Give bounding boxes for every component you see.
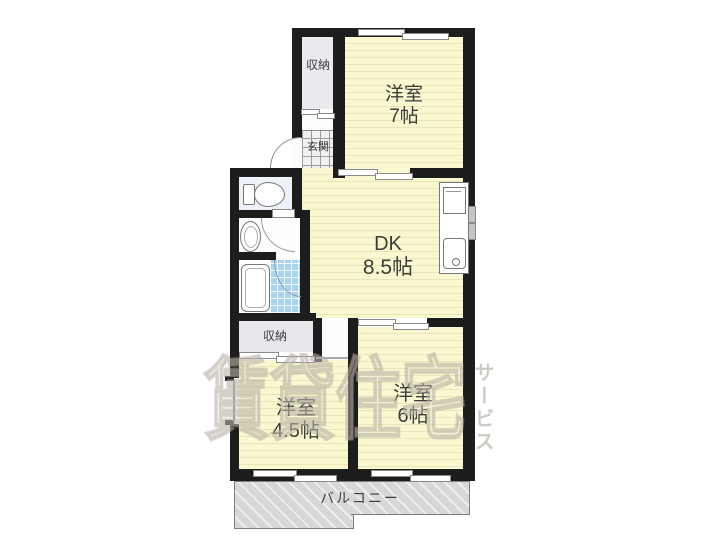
window-icon bbox=[358, 29, 405, 36]
wall bbox=[292, 168, 302, 210]
dk-w6-sliding-door-icon bbox=[358, 319, 396, 326]
dk-label: DK bbox=[352, 233, 424, 255]
dk-size-label: 8.5帖 bbox=[352, 256, 424, 279]
floorplan: 収納 洋室 7帖 玄関 DK 8.5帖 収納 洋室 4.5帖 洋室 6帖 バルコ… bbox=[0, 0, 720, 540]
wall bbox=[230, 252, 276, 260]
closet-bottom-label: 収納 bbox=[253, 330, 297, 343]
stove-icon bbox=[446, 191, 461, 192]
balcony-window-icon bbox=[410, 475, 451, 482]
window-icon bbox=[402, 33, 449, 40]
balcony-window-icon bbox=[371, 470, 413, 477]
western7-size-label: 7帖 bbox=[368, 107, 440, 128]
wall bbox=[300, 210, 310, 321]
dk-w7-sliding-door-icon bbox=[338, 169, 378, 176]
balcony-window-icon bbox=[253, 470, 297, 477]
closet-top-label: 収納 bbox=[296, 59, 340, 72]
wall bbox=[410, 168, 463, 178]
wall bbox=[333, 36, 345, 178]
closet-top-sliding-door-icon bbox=[317, 113, 335, 119]
western7-label: 洋室 bbox=[368, 85, 440, 106]
dk-w6-sliding-door-icon bbox=[393, 323, 429, 330]
watermark-vertical-text: サービス bbox=[468, 362, 497, 462]
wall bbox=[230, 313, 316, 321]
balcony-label: バルコニー bbox=[308, 491, 412, 506]
genkan-label: 玄関 bbox=[302, 141, 334, 153]
bathroom-door-opening bbox=[276, 252, 300, 260]
wall bbox=[230, 210, 273, 218]
dk-w7-sliding-door-icon bbox=[375, 173, 413, 180]
wall bbox=[292, 28, 302, 138]
wall bbox=[427, 318, 475, 327]
front-door-swing-icon bbox=[270, 137, 301, 168]
watermark-text: 賃貸住宅 bbox=[204, 356, 467, 446]
washbasin-icon bbox=[244, 226, 258, 248]
balcony-window-icon bbox=[294, 475, 337, 482]
closet-top-floor bbox=[302, 37, 333, 109]
toilet-door-icon bbox=[272, 209, 295, 218]
faucet-icon bbox=[452, 258, 460, 266]
bathtub-icon bbox=[245, 268, 266, 308]
